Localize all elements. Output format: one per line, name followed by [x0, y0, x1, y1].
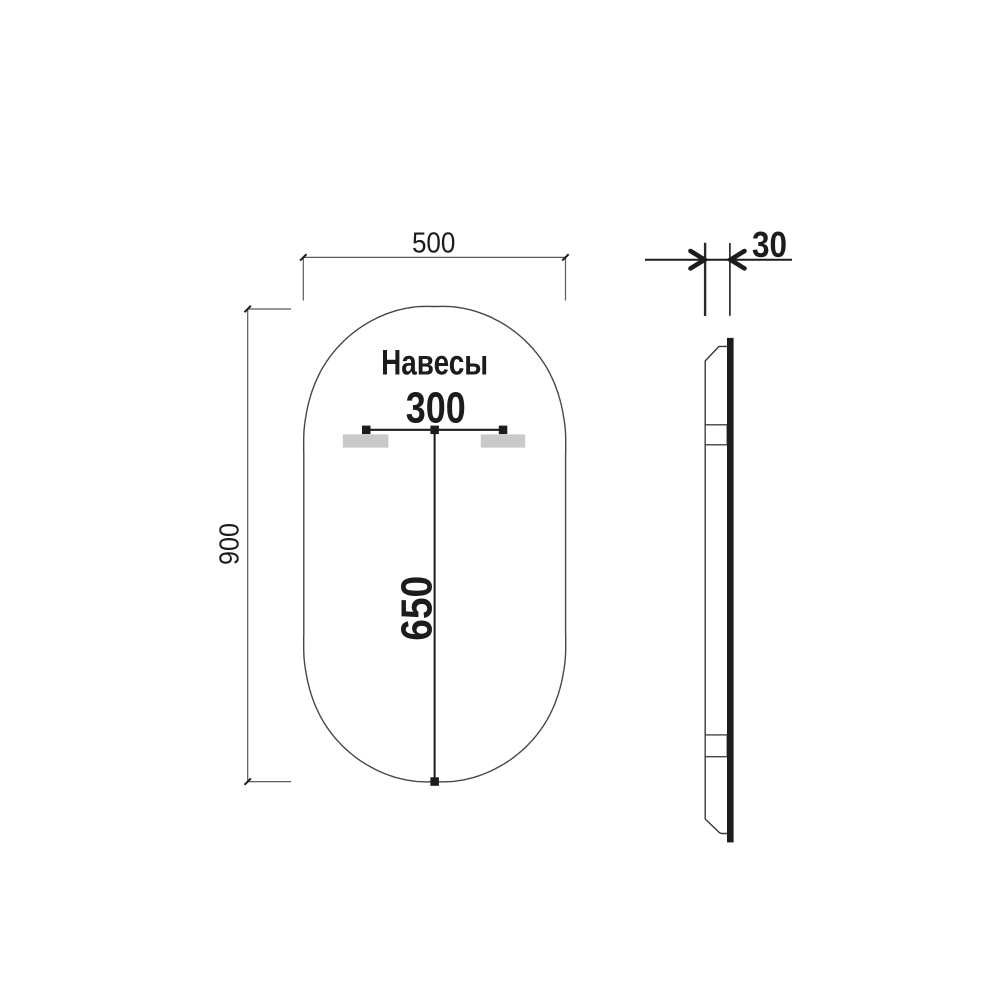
svg-text:30: 30: [752, 224, 787, 265]
svg-text:Навесы: Навесы: [381, 343, 488, 382]
svg-text:900: 900: [213, 523, 244, 565]
svg-text:500: 500: [412, 227, 456, 259]
svg-text:300: 300: [406, 384, 466, 432]
svg-text:650: 650: [394, 576, 442, 641]
